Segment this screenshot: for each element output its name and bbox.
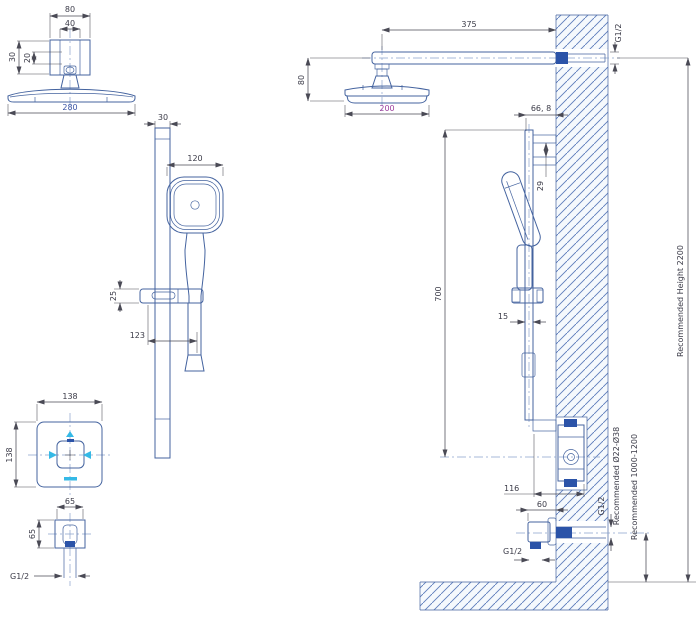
dim-head-width-side: 200 (345, 104, 429, 117)
dim-label-138-top: 138 (62, 392, 77, 401)
dim-arm-length: 375 (382, 20, 556, 50)
dim-label-g12-outlet: G1/2 (597, 496, 606, 515)
dim-label-g12-valve: G1/2 (10, 572, 29, 581)
knob-top-mark (67, 439, 74, 442)
view-hand-shower-front (140, 128, 223, 458)
dim-bar-length: 700 (434, 130, 524, 457)
dim-valve-thread: G1/2 (10, 572, 90, 581)
dim-mixer-width: 116 (504, 434, 584, 497)
dim-label-30-left: 30 (8, 52, 17, 62)
dim-label-29: 29 (536, 181, 545, 191)
view-mixer-front (28, 413, 112, 497)
note-overall-height: Recommended Height 2200 (676, 58, 688, 582)
dim-bar-depth: 15 (498, 312, 546, 322)
wall-section (420, 15, 696, 610)
dim-label-g12-arm: G1/2 (614, 23, 623, 42)
drawing-page: 80 40 30 20 280 (0, 0, 700, 620)
dim-label-138-left: 138 (5, 447, 14, 462)
dim-label-280: 280 (62, 103, 77, 112)
dim-plate-width: 138 (37, 392, 102, 421)
dim-label-123: 123 (130, 331, 145, 340)
dim-bar-width: 30 (144, 113, 181, 128)
view-overhead-shower-front (8, 29, 135, 112)
dim-outlet-thread: G1/2 (597, 496, 611, 551)
shower-installation-drawing: 80 40 30 20 280 (0, 0, 700, 620)
dim-label-40: 40 (65, 19, 75, 28)
dim-label-80-top: 80 (65, 5, 75, 14)
note-label-outlet-height: Recommended 1000-1200 (630, 434, 639, 540)
view-valve-front (48, 513, 94, 586)
dim-label-116: 116 (504, 484, 519, 493)
note-label-overall-height: Recommended Height 2200 (676, 245, 685, 357)
dim-handshower-head-width: 120 (167, 154, 223, 176)
dim-label-65-left: 65 (28, 529, 37, 539)
dim-label-375: 375 (461, 20, 476, 29)
dim-label-120: 120 (187, 154, 202, 163)
dim-label-65-top: 65 (65, 497, 75, 506)
dim-label-700: 700 (434, 286, 443, 301)
dim-head-drop: 80 (297, 58, 370, 101)
dim-label-200: 200 (379, 104, 394, 113)
arrow-up-icon (66, 431, 74, 437)
arrow-right-icon (49, 451, 57, 459)
dim-label-25: 25 (109, 291, 118, 301)
dim-label-15: 15 (498, 312, 508, 321)
dim-overhead-head-width: 280 (8, 103, 135, 116)
dim-label-66-8: 66, 8 (531, 104, 551, 113)
note-outlet-height: Recommended 1000-1200 (630, 434, 646, 582)
dim-plate-height: 138 (5, 422, 36, 487)
floor-section (420, 582, 556, 610)
dim-overhead-height-inner: 20 (23, 52, 62, 64)
dim-bracket-height: 25 (109, 280, 139, 312)
dim-outlet-thread-bottom: G1/2 (503, 547, 555, 560)
note-label-clamp: Recommended Ø22-Ø38 (611, 427, 621, 525)
dim-handshower-reach: 123 (130, 305, 197, 353)
dim-label-20-left: 20 (23, 53, 32, 63)
dim-bracket-gap: 29 (536, 143, 546, 191)
dim-label-30-bar: 30 (158, 113, 168, 122)
dim-label-60: 60 (537, 500, 547, 509)
dim-arm-thread: G1/2 (610, 23, 688, 74)
mixer-valve-side (558, 419, 584, 487)
knob-bottom-mark (64, 477, 77, 481)
note-clamp-range: Recommended Ø22-Ø38 (611, 427, 621, 525)
dim-label-80-side: 80 (297, 75, 306, 85)
dim-label-g12-bottom: G1/2 (503, 547, 522, 556)
